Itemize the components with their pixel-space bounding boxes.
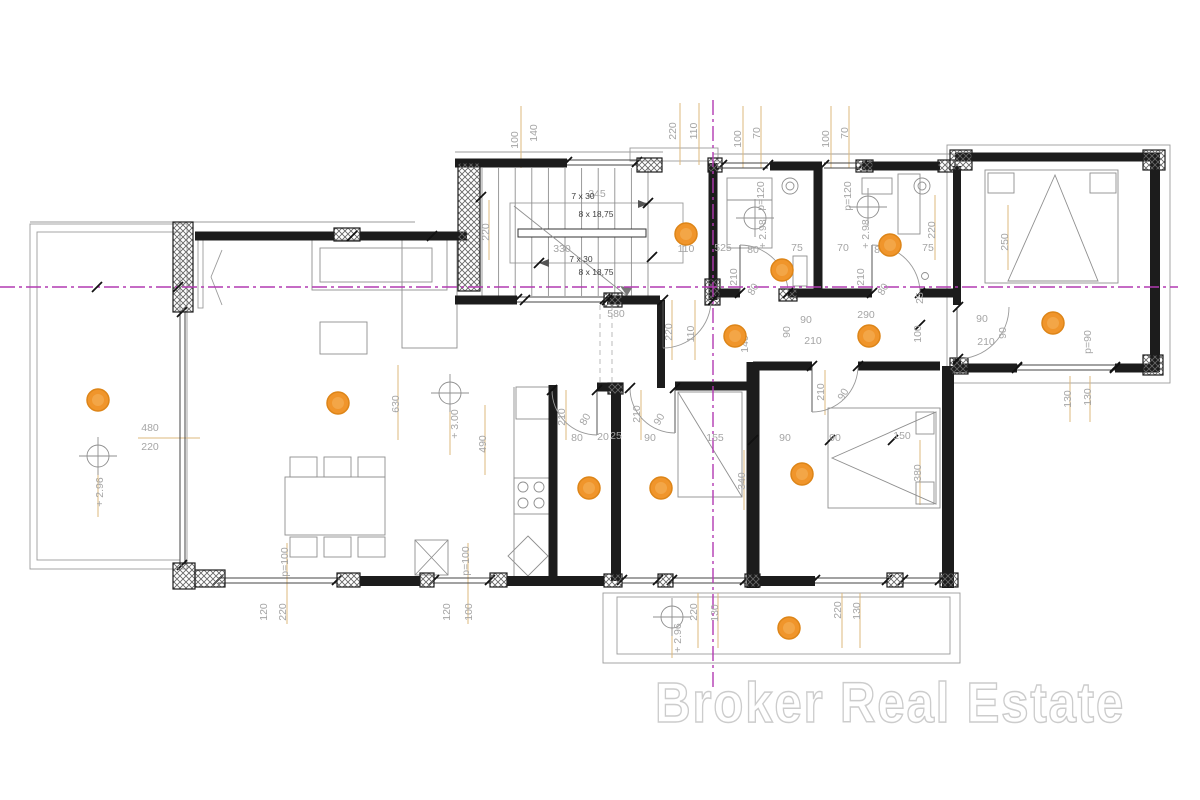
- dimension-label: 490: [477, 435, 489, 453]
- furniture-outline: [312, 240, 447, 290]
- dimension-label: 70: [839, 127, 851, 139]
- furniture-outline: [358, 457, 385, 477]
- dimension-label: 80: [571, 432, 583, 444]
- dimension-label: 220: [832, 601, 844, 619]
- hatched-wall: [950, 358, 968, 374]
- dimension-label: p=120: [842, 181, 854, 211]
- dimension-label: 90: [779, 432, 791, 444]
- room-marker-core: [729, 330, 741, 342]
- hatched-wall: [856, 160, 873, 172]
- dimension-label: 210: [815, 383, 827, 401]
- dimension-label: 220: [926, 221, 938, 239]
- dimension-label: 330: [553, 243, 571, 255]
- dimension-label: 70: [751, 127, 763, 139]
- furniture-outline: [1090, 173, 1116, 193]
- hatched-wall: [195, 570, 225, 587]
- dimension-label: p=100: [279, 547, 291, 577]
- dimension-label: 75: [791, 242, 803, 254]
- stair-rail: [518, 229, 646, 237]
- hatched-wall: [173, 563, 195, 589]
- stair-label: 8 x 18,75: [579, 209, 614, 219]
- dimension-label: 120: [441, 603, 453, 621]
- dimension-label: 100: [732, 130, 744, 148]
- stair-label: 8 x 18,75: [579, 267, 614, 277]
- dimension-label: 210: [804, 335, 822, 347]
- hatched-wall: [337, 573, 360, 587]
- furniture-outline: [916, 482, 934, 504]
- furniture-outline: [516, 387, 550, 419]
- dimension-label: 80: [577, 411, 593, 427]
- fixture-circle: [914, 178, 930, 194]
- dimension-label: 210: [728, 268, 740, 286]
- fixture-circle: [922, 273, 929, 280]
- dimension-label: + 2.98: [860, 219, 872, 249]
- hatched-wall: [887, 573, 903, 587]
- dimension-label: + 2.96: [94, 477, 106, 507]
- furniture-outline: [320, 248, 432, 282]
- furniture-outline: [324, 457, 351, 477]
- hatched-wall: [708, 158, 722, 172]
- hatched-wall: [950, 150, 972, 170]
- room-marker-core: [92, 394, 104, 406]
- wall-tick: [647, 252, 657, 262]
- dimension-label: 130: [1082, 388, 1094, 406]
- room-marker-core: [796, 468, 808, 480]
- dimension-label: 220: [480, 223, 492, 241]
- fixture-circle: [518, 482, 528, 492]
- dimension-label: 340: [736, 472, 748, 490]
- furniture-outline: [828, 408, 940, 508]
- hatched-wall: [490, 573, 507, 587]
- dimension-label: 220: [667, 122, 679, 140]
- dimension-label: 210: [977, 336, 995, 348]
- floor-plan-drawing: 1401002201101007010070220345330110525807…: [0, 0, 1200, 800]
- dimension-label: 210: [855, 268, 867, 286]
- furniture-outline: [898, 174, 920, 234]
- dimension-label: 100: [912, 325, 924, 343]
- dimension-label: 90: [835, 386, 851, 402]
- dimension-label: 220: [688, 603, 700, 621]
- fixture-circle: [782, 178, 798, 194]
- dimension-label: 100: [820, 130, 832, 148]
- dim-arrow-icon: [539, 259, 549, 267]
- outline-line: [211, 277, 222, 305]
- furniture-outline: [324, 537, 351, 557]
- furniture-outline: [916, 412, 934, 434]
- room-marker-core: [776, 264, 788, 276]
- dimension-label: p=120: [755, 181, 767, 211]
- furniture-outline: [862, 178, 892, 194]
- dimension-label: 220: [663, 323, 675, 341]
- room-marker-core: [655, 482, 667, 494]
- furniture-outline: [285, 477, 385, 535]
- dimension-label: 100: [463, 603, 475, 621]
- fixture-circle: [518, 498, 528, 508]
- dimension-label: 90: [997, 327, 1009, 339]
- hatched-wall: [604, 574, 622, 587]
- dimension-label: 130: [851, 602, 863, 620]
- furniture-outline: [290, 537, 317, 557]
- furniture-outline: [988, 173, 1014, 193]
- dimension-label: 25: [914, 292, 926, 304]
- dimension-label: 110: [688, 122, 700, 139]
- fixture-circle: [534, 498, 544, 508]
- hatched-wall: [940, 573, 958, 587]
- dimension-label: 150: [893, 430, 911, 442]
- dimension-label: 140: [528, 124, 540, 142]
- dimension-label: 210: [556, 408, 568, 426]
- outline-line: [211, 250, 222, 277]
- stair-label: 7 x 30: [569, 254, 592, 264]
- dimension-label: 90: [651, 411, 667, 427]
- furniture-outline: [402, 240, 457, 348]
- floorplan-page: 1401002201101007010070220345330110525807…: [0, 0, 1200, 800]
- dimension-label: 110: [685, 325, 697, 342]
- hatched-wall: [1143, 355, 1163, 375]
- dimension-label: 25: [610, 430, 622, 442]
- dimension-label: p=90: [1082, 330, 1094, 354]
- dimension-label: 580: [607, 308, 625, 320]
- dimension-label: 380: [912, 464, 924, 482]
- dimension-label: 90: [800, 314, 812, 326]
- dimension-label: 210: [631, 405, 643, 423]
- hatched-wall: [458, 163, 480, 291]
- hatched-wall: [420, 573, 434, 587]
- room-marker-core: [583, 482, 595, 494]
- hatched-wall: [1143, 150, 1165, 170]
- furniture-outline: [320, 322, 367, 354]
- dimension-label: 70: [837, 242, 849, 254]
- dimension-label: 90: [829, 432, 841, 444]
- dimension-label: + 2.98: [757, 219, 769, 249]
- furniture-line: [678, 392, 742, 497]
- hatched-wall: [658, 574, 673, 587]
- room-marker-core: [884, 239, 896, 251]
- dimension-label: 80: [875, 281, 891, 297]
- dimension-label: 120: [258, 603, 270, 621]
- room-marker-core: [680, 228, 692, 240]
- dimension-label: 525: [714, 242, 732, 254]
- dimension-label: 75: [922, 242, 934, 254]
- furniture-shape: [1008, 175, 1098, 281]
- dimension-label: 130: [1062, 390, 1074, 408]
- fixture-circle: [786, 182, 794, 190]
- dimension-label: 20: [597, 431, 609, 443]
- dimension-label: 220: [277, 603, 289, 621]
- dimension-label: 155: [706, 432, 724, 444]
- hatched-wall: [745, 574, 760, 587]
- dimension-label: 220: [141, 441, 159, 453]
- hatched-wall: [608, 383, 623, 394]
- outline: [198, 235, 203, 308]
- stair-label: 7 x 30: [571, 191, 594, 201]
- dimension-label: + 3.00: [449, 409, 461, 439]
- dimension-label: p=100: [460, 546, 472, 576]
- fixture-circle: [918, 182, 926, 190]
- hatched-wall: [334, 228, 360, 241]
- room-marker-core: [783, 622, 795, 634]
- furniture-outline: [290, 457, 317, 477]
- dimension-label: 90: [976, 313, 988, 325]
- watermark: Broker Real Estate: [655, 671, 1125, 735]
- wall-tick: [92, 282, 102, 292]
- furniture-outline: [358, 537, 385, 557]
- dimension-label: + 2.96: [672, 623, 684, 653]
- furniture-outline: [985, 170, 1118, 283]
- dimension-label: 90: [644, 432, 656, 444]
- dimension-label: 290: [857, 309, 875, 321]
- hatched-wall: [173, 222, 193, 312]
- dimension-label: 250: [999, 233, 1011, 251]
- fixture-circle: [534, 482, 544, 492]
- room-marker-core: [332, 397, 344, 409]
- furniture-outline: [793, 256, 807, 286]
- dimension-label: 90: [781, 326, 793, 338]
- dimension-label: 80: [745, 281, 761, 297]
- dimension-label: 130: [709, 604, 721, 622]
- hatched-wall: [637, 158, 662, 172]
- dimension-label: 630: [390, 395, 402, 413]
- dimension-label: 100: [509, 131, 521, 149]
- dimension-label: 480: [141, 422, 159, 434]
- room-marker-core: [1047, 317, 1059, 329]
- room-marker-core: [863, 330, 875, 342]
